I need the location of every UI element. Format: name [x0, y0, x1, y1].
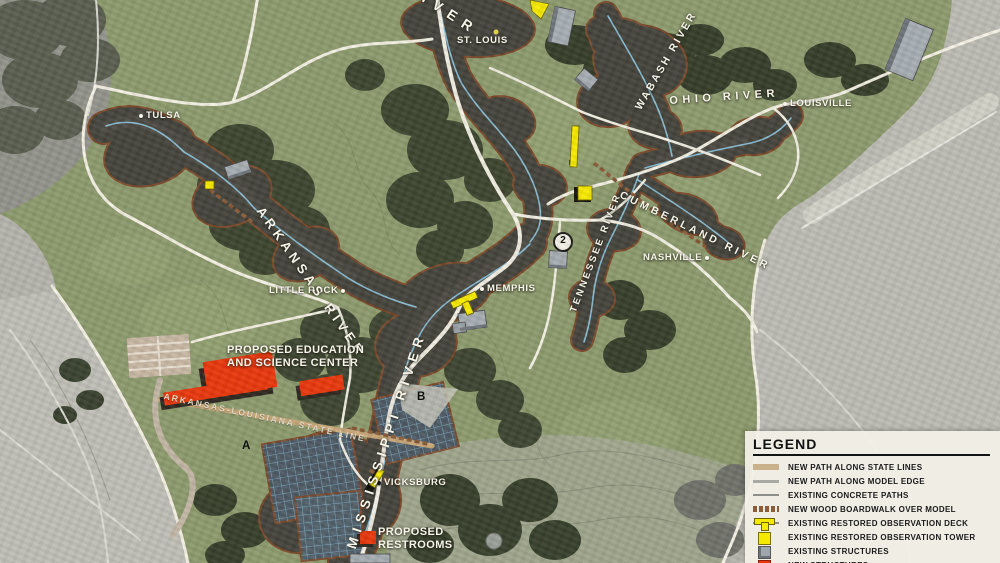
city-label-tulsa: TULSA [139, 110, 181, 121]
city-label-memphis: MEMPHIS [480, 283, 536, 294]
legend-item: EXISTING CONCRETE PATHS [753, 488, 990, 502]
wood-boardwalk-icon [753, 503, 779, 516]
marker-a: A [242, 440, 250, 452]
legend-item: NEW PATH ALONG MODEL EDGE [753, 474, 990, 488]
city-dot-icon [341, 289, 345, 293]
existing-concrete-path-icon [753, 489, 779, 502]
river-label-top: RIVER [404, 0, 482, 39]
city-label-vicksburg: VICKSBURG [377, 477, 446, 488]
legend-title: LEGEND [753, 436, 990, 456]
legend-item: EXISTING RESTORED OBSERVATION TOWER [753, 530, 990, 544]
city-dot-icon [705, 256, 709, 260]
state-line-label: ARKANSAS-LOUISIANA STATE LINE [163, 391, 367, 444]
river-label-ohio: OHIO RIVER [669, 87, 779, 107]
restrooms-annotation: PROPOSED RESTROOMS [378, 526, 453, 552]
marker-2: 2 [558, 235, 568, 246]
river-label-tennessee: TENNESSEE RIVER [568, 192, 624, 314]
marker-b: B [417, 391, 425, 403]
city-label-st-louis: ST. LOUIS [457, 35, 508, 46]
legend-item: EXISTING STRUCTURES [753, 544, 990, 558]
legend-panel: LEGEND NEW PATH ALONG STATE LINES NEW PA… [745, 431, 1000, 563]
new-path-model-edge-icon [753, 475, 779, 488]
site-plan-map: TULSA ST. LOUIS LITTLE ROCK MEMPHIS NASH… [0, 0, 1000, 563]
observation-tower-icon [753, 531, 779, 544]
legend-item: NEW PATH ALONG STATE LINES [753, 460, 990, 474]
legend-item: EXISTING RESTORED OBSERVATION DECK [753, 516, 990, 530]
city-dot-icon [480, 287, 484, 291]
new-path-state-lines-icon [753, 461, 779, 474]
city-dot-icon [783, 102, 787, 106]
legend-item: NEW WOOD BOARDWALK OVER MODEL [753, 502, 990, 516]
observation-deck-icon [753, 517, 779, 530]
existing-structure-icon [753, 545, 779, 558]
city-label-nashville: NASHVILLE [643, 252, 709, 263]
city-label-louisville: LOUISVILLE [783, 98, 852, 109]
education-center-annotation: PROPOSED EDUCATION AND SCIENCE CENTER [227, 344, 345, 370]
river-label-arkansas: ARKANSAS RIVER [254, 204, 370, 360]
legend-item: NEW STRUCTURES [753, 558, 990, 563]
city-dot-icon [139, 114, 143, 118]
new-structure-icon [753, 559, 779, 563]
